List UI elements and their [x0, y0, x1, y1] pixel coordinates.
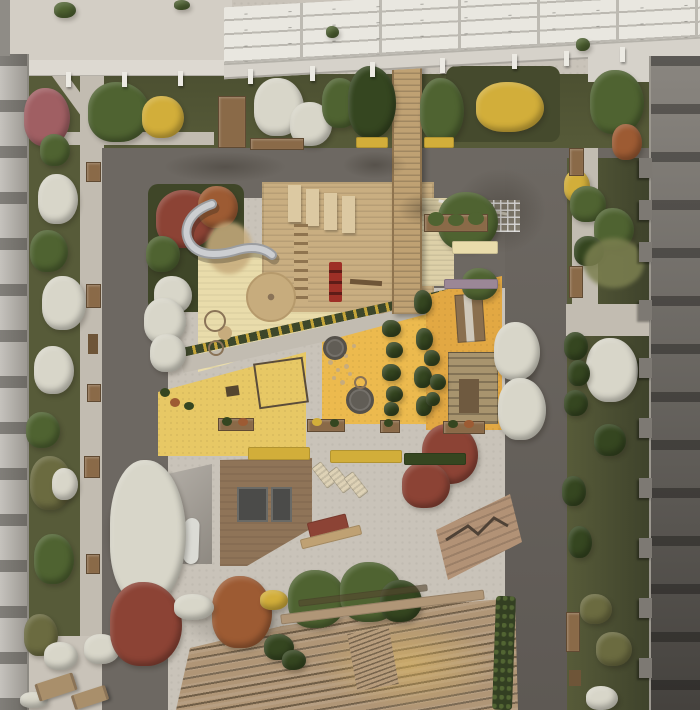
sports-slide-unit: [454, 293, 485, 343]
red-tree: [402, 462, 450, 508]
balcony-plant: [576, 38, 590, 51]
dot: [464, 420, 474, 428]
building-right-facade: [649, 56, 700, 710]
planter: [566, 612, 580, 652]
planter: [250, 138, 304, 150]
sports-pergola: [448, 352, 498, 424]
column: [370, 62, 375, 77]
dot: [428, 212, 444, 226]
dot: [448, 420, 458, 428]
tree: [88, 82, 150, 142]
dot: [330, 419, 339, 427]
bush: [564, 390, 588, 416]
white-shrub: [34, 346, 74, 394]
hedge-strip: [404, 453, 466, 465]
flower-strip: [330, 450, 402, 463]
bench: [569, 670, 581, 686]
bush: [40, 134, 70, 166]
balcony-plant: [326, 26, 339, 38]
rust-tree: [212, 576, 272, 648]
balcony: [639, 300, 652, 320]
skylight: [237, 487, 268, 522]
bush: [386, 386, 403, 402]
planter: [569, 148, 584, 176]
dot: [336, 368, 340, 372]
boardwalk-bridge: [392, 56, 422, 314]
bush: [384, 402, 399, 416]
bush: [54, 2, 76, 18]
bush: [174, 0, 190, 10]
white-shrub: [38, 174, 78, 224]
bush: [34, 534, 74, 584]
column: [440, 58, 445, 73]
yellow-tree: [476, 82, 544, 132]
dot: [332, 376, 336, 380]
bush: [430, 374, 446, 390]
column: [178, 71, 183, 86]
planter: [86, 554, 100, 574]
balcony: [639, 418, 652, 438]
flower-strip: [424, 137, 454, 148]
dot: [184, 402, 194, 410]
bush: [382, 320, 401, 337]
flower-strip: [356, 137, 388, 148]
aerial-courtyard-render: [0, 0, 700, 710]
column: [620, 47, 625, 62]
white-shrub: [52, 468, 78, 500]
column: [512, 54, 517, 69]
yellow-shrub: [142, 96, 184, 138]
bush: [564, 332, 588, 360]
yellow-shrub: [260, 590, 288, 610]
bush: [594, 424, 626, 456]
bush: [282, 650, 306, 670]
bush: [568, 526, 592, 558]
rust-shrub: [612, 124, 642, 160]
planter: [218, 96, 246, 148]
planter: [86, 162, 101, 182]
bush: [568, 360, 590, 386]
shrub: [580, 594, 612, 624]
lawn-patch: [584, 238, 644, 288]
bush: [414, 290, 432, 314]
play-ring: [204, 310, 226, 332]
rope-course-frame: [253, 357, 309, 410]
play-equipment: [225, 385, 239, 397]
amphitheater-tint: [318, 618, 498, 710]
bush: [424, 350, 440, 366]
balcony: [639, 242, 652, 262]
column: [122, 72, 127, 87]
bush: [562, 476, 586, 506]
balcony: [639, 598, 652, 618]
balcony: [639, 538, 652, 558]
white-tree: [150, 334, 186, 372]
planter: [84, 456, 100, 478]
balcony: [639, 158, 652, 178]
red-play-structure: [329, 262, 342, 302]
dot: [238, 418, 248, 426]
trampoline: [346, 386, 374, 414]
white-shrub: [44, 642, 78, 670]
skylight: [271, 487, 292, 522]
balcony: [639, 200, 652, 220]
building-left-facade: [0, 54, 29, 710]
dot: [328, 360, 333, 365]
dot: [160, 388, 170, 397]
dot: [344, 354, 348, 358]
tube-slide: [148, 178, 298, 278]
plaza-top-left: [0, 0, 232, 62]
pergola-slat: [324, 193, 337, 230]
dot: [348, 372, 352, 376]
flowers: [586, 686, 618, 710]
bush: [26, 412, 60, 448]
red-tree-large: [110, 582, 182, 666]
balcony: [639, 478, 652, 498]
white-tree: [498, 378, 546, 440]
balcony: [639, 358, 652, 378]
bush: [382, 364, 401, 381]
pergola-slat: [306, 189, 319, 226]
dot: [312, 418, 322, 426]
pergola-bench: [459, 379, 479, 413]
pavilion-roof: [220, 458, 313, 566]
tree: [420, 78, 464, 142]
dot: [352, 344, 356, 348]
sand-circle: [246, 272, 296, 322]
bush: [386, 342, 403, 358]
dot: [384, 419, 393, 427]
play-ring: [208, 340, 224, 356]
building-left-corner: [0, 0, 10, 56]
pale-planter: [452, 241, 498, 254]
white-tree: [494, 322, 540, 380]
column: [564, 51, 569, 66]
play-ring: [354, 376, 367, 389]
column: [248, 69, 253, 84]
dot: [340, 380, 345, 385]
shrub: [596, 632, 632, 666]
dot: [344, 364, 349, 369]
flower-strip: [248, 447, 310, 460]
column: [66, 72, 71, 87]
lavender-strip: [444, 279, 498, 289]
shadow: [330, 146, 420, 184]
planter: [87, 384, 101, 402]
white-shrub: [42, 276, 86, 330]
hedge-strip: [492, 596, 516, 710]
planter: [569, 266, 583, 298]
planter: [86, 284, 101, 308]
dot: [468, 212, 484, 225]
bush: [30, 230, 68, 272]
tree: [590, 70, 644, 134]
bench: [88, 334, 98, 354]
bush: [426, 392, 440, 406]
pergola-slat: [342, 196, 355, 233]
dot: [448, 214, 464, 226]
balcony: [639, 658, 652, 678]
dot: [222, 417, 232, 426]
column: [310, 66, 315, 81]
white-bush: [586, 338, 638, 402]
flowers: [174, 594, 214, 620]
bush: [416, 328, 433, 350]
dot: [170, 398, 180, 407]
